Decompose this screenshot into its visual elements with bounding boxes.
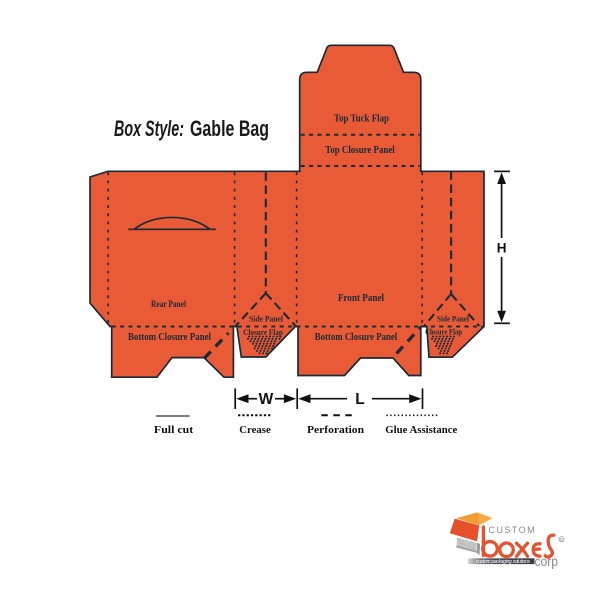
svg-text:Side Panel: Side Panel (437, 313, 469, 323)
svg-text:Front Panel: Front Panel (338, 293, 384, 304)
svg-text:Gable Bag: Gable Bag (190, 116, 269, 141)
svg-text:corp: corp (535, 554, 559, 569)
svg-text:Rear Panel: Rear Panel (151, 299, 186, 310)
svg-text:Top Closure Panel: Top Closure Panel (325, 145, 395, 156)
svg-text:H: H (497, 241, 507, 256)
svg-text:Crease: Crease (239, 424, 271, 436)
svg-text:Box Style:: Box Style: (114, 116, 184, 141)
svg-text:Side Panel: Side Panel (249, 314, 283, 324)
svg-text:Glue Assistance: Glue Assistance (385, 424, 457, 436)
svg-text:W: W (259, 391, 274, 408)
svg-text:Perforation: Perforation (307, 424, 364, 436)
svg-text:Full cut: Full cut (154, 424, 194, 436)
svg-text:Closure Flap: Closure Flap (243, 327, 283, 337)
svg-text:L: L (355, 391, 364, 408)
svg-text:Bottom Closure Panel: Bottom Closure Panel (128, 331, 211, 343)
svg-text:Top Tuck Flap: Top Tuck Flap (334, 114, 389, 125)
svg-text:Closure Flap: Closure Flap (425, 327, 462, 337)
svg-text:Bottom Closure Panel: Bottom Closure Panel (315, 331, 398, 343)
svg-text:CUSTOM: CUSTOM (489, 525, 537, 535)
svg-text:custom packaging solutions: custom packaging solutions (476, 559, 531, 565)
